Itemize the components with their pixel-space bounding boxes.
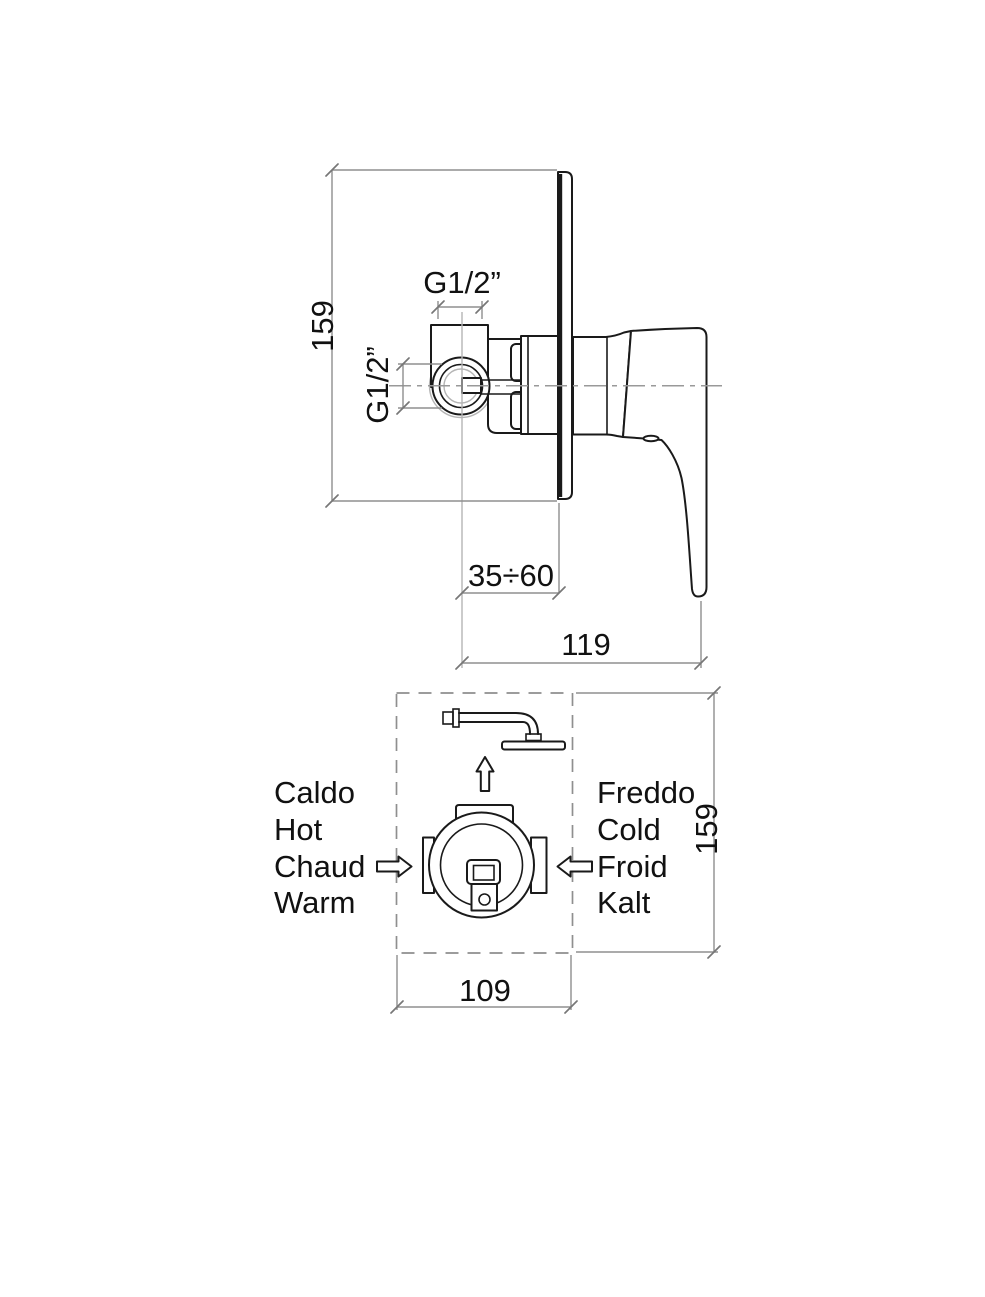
label-hot-it: Caldo	[274, 775, 355, 810]
side-view: 159 G1/2” G1/2” 35÷60 119	[305, 164, 722, 669]
up-arrow-icon	[477, 757, 494, 791]
handle-lever	[623, 328, 707, 597]
label-cold-fr: Froid	[597, 849, 668, 884]
spindle-plate	[472, 884, 498, 911]
shower-mixer-technical-drawing: 159 G1/2” G1/2” 35÷60 119	[0, 0, 985, 1297]
label-hot-fr: Chaud	[274, 849, 365, 884]
cold-inlet-arrow-icon	[558, 857, 593, 877]
wall-plate	[558, 172, 572, 499]
label-cold-it: Freddo	[597, 775, 695, 810]
escutcheon	[573, 331, 631, 437]
dim-label-height-front: 159	[689, 803, 724, 855]
dim-label-width-front: 109	[459, 973, 511, 1008]
lever-outline	[623, 328, 707, 597]
dim-label-top-port: G1/2”	[423, 265, 501, 300]
label-hot-de: Warm	[274, 885, 356, 920]
valve-body-front	[423, 805, 547, 918]
valve-body-side	[431, 325, 559, 434]
dim-label-depth-range: 35÷60	[468, 558, 554, 593]
dim-label-side-port: G1/2”	[360, 346, 395, 424]
label-hot-en: Hot	[274, 812, 323, 847]
label-cold-en: Cold	[597, 812, 661, 847]
label-cold-de: Kalt	[597, 885, 651, 920]
hot-labels: Caldo Hot Chaud Warm	[274, 775, 365, 920]
hot-inlet-arrow-icon	[377, 857, 412, 877]
lever-detail	[644, 436, 659, 441]
dim-label-height-side: 159	[305, 300, 340, 352]
dim-label-total-depth: 119	[561, 627, 610, 662]
technical-drawing-canvas: 159 G1/2” G1/2” 35÷60 119	[0, 0, 985, 1297]
cartridge-housing	[521, 336, 559, 434]
shower-head-icon	[443, 709, 565, 750]
front-view: Caldo Hot Chaud Warm Freddo Cold Froid K…	[274, 687, 724, 1013]
cold-labels: Freddo Cold Froid Kalt	[597, 775, 695, 920]
